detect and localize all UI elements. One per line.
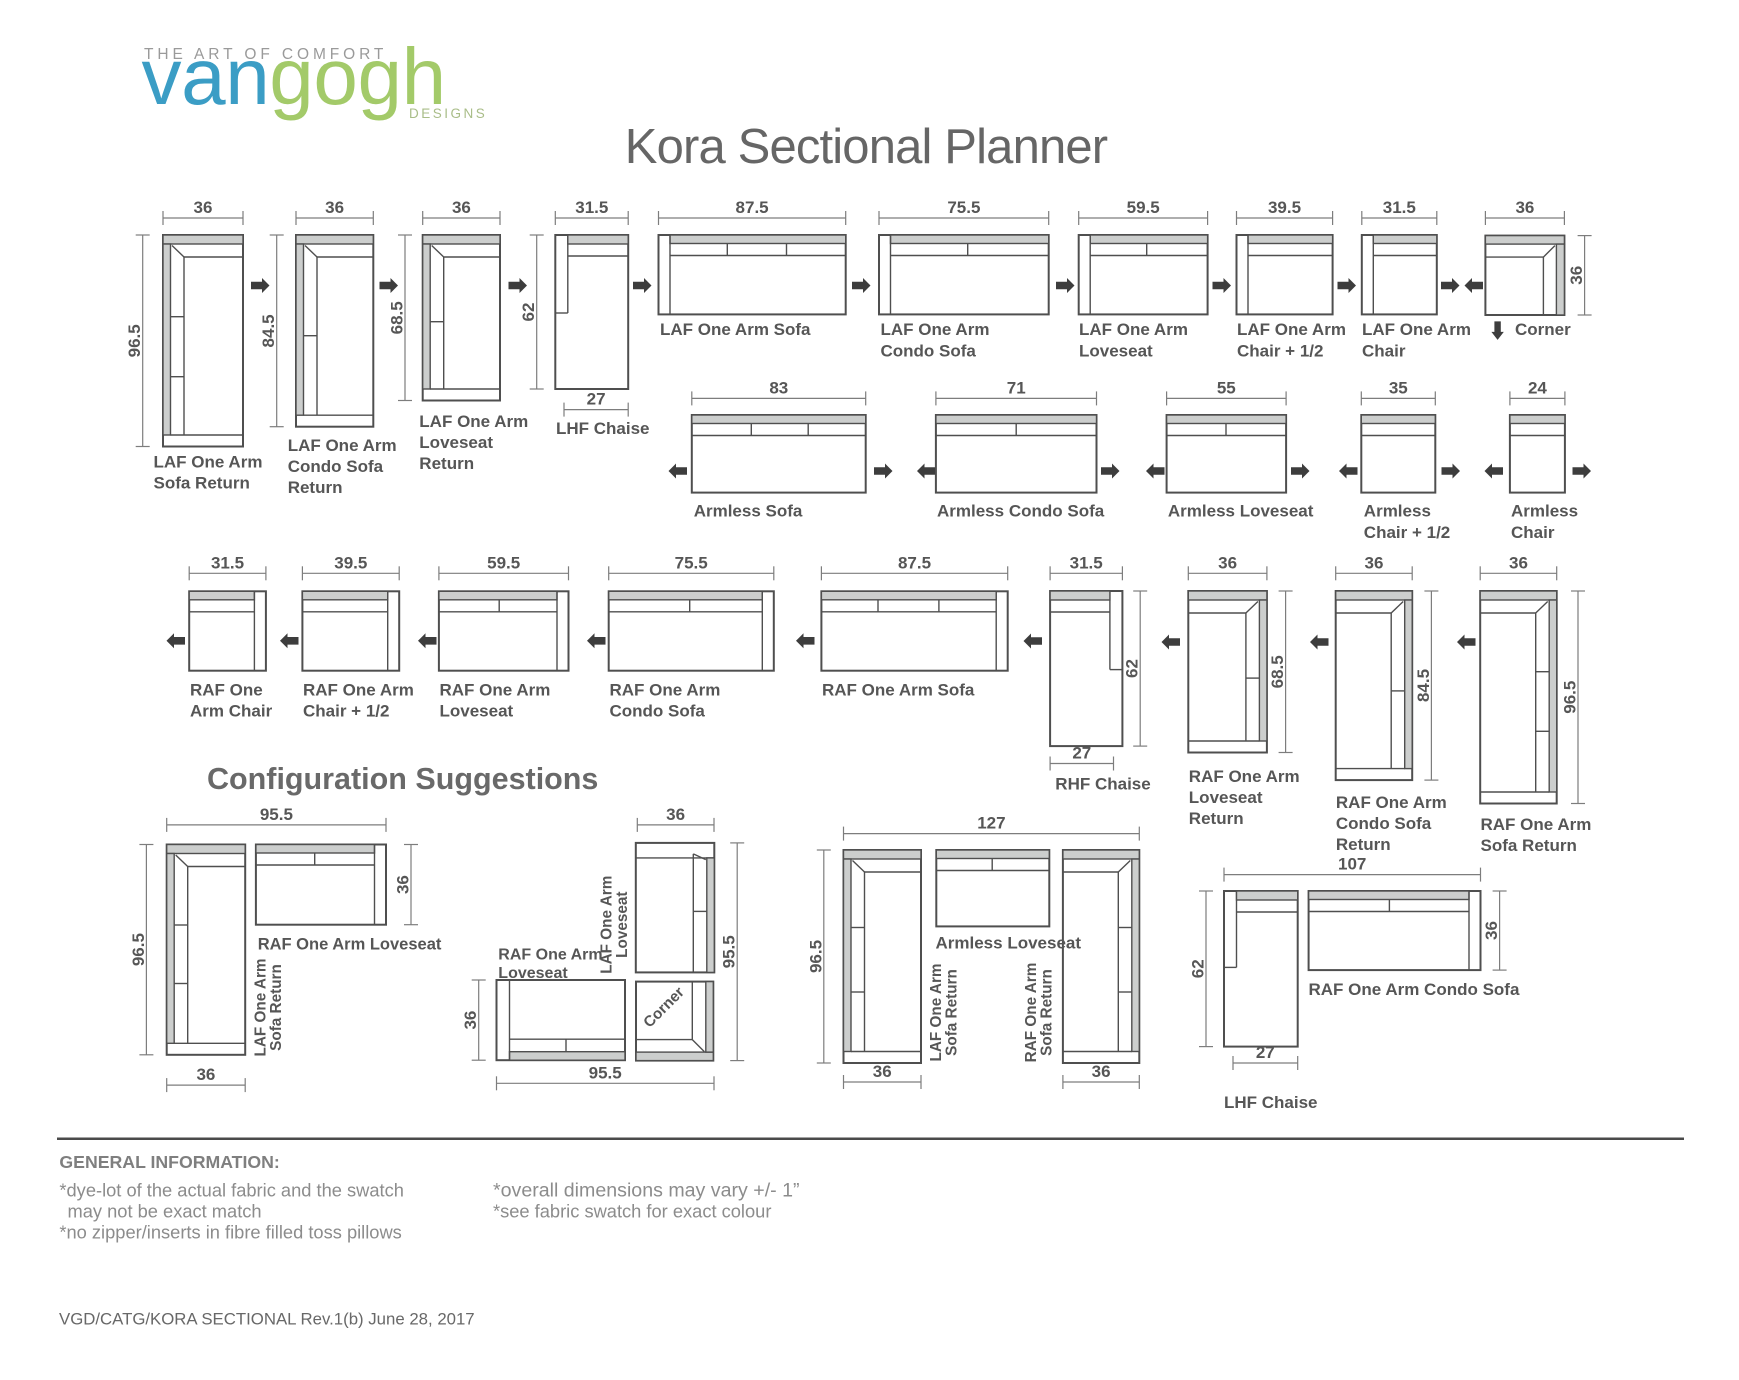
svg-text:Condo Sofa: Condo Sofa [288, 457, 384, 476]
svg-text:83: 83 [769, 378, 788, 397]
svg-text:RAF One Arm: RAF One Arm [1189, 767, 1300, 786]
svg-text:Loveseat: Loveseat [419, 433, 493, 452]
svg-text:36: 36 [1509, 553, 1528, 572]
svg-text:95.5: 95.5 [260, 805, 293, 824]
svg-text:36: 36 [1365, 553, 1384, 572]
svg-text:27: 27 [1072, 744, 1091, 763]
svg-text:Armless: Armless [1364, 502, 1431, 521]
svg-text:62: 62 [519, 303, 538, 322]
svg-text:Armless Condo Sofa: Armless Condo Sofa [937, 502, 1105, 521]
svg-text:Sofa Return: Sofa Return [944, 969, 961, 1056]
svg-text:62: 62 [1189, 959, 1208, 978]
svg-text:RAF One Arm: RAF One Arm [1023, 963, 1040, 1063]
svg-text:LAF One Arm: LAF One Arm [1079, 320, 1188, 339]
svg-text:Loveseat: Loveseat [440, 701, 514, 720]
svg-text:68.5: 68.5 [388, 301, 407, 334]
svg-text:27: 27 [1256, 1043, 1275, 1062]
svg-text:RHF Chaise: RHF Chaise [1055, 775, 1150, 794]
svg-text:35: 35 [1389, 378, 1408, 397]
svg-text:84.5: 84.5 [259, 314, 278, 347]
svg-text:96.5: 96.5 [806, 940, 825, 973]
svg-text:may not be exact match: may not be exact match [68, 1201, 262, 1222]
svg-text:DESIGNS: DESIGNS [409, 106, 487, 121]
svg-text:24: 24 [1528, 378, 1547, 397]
svg-text:LHF Chaise: LHF Chaise [1224, 1093, 1318, 1112]
svg-text:36: 36 [394, 875, 413, 894]
svg-text:36: 36 [461, 1011, 480, 1030]
svg-text:55: 55 [1217, 378, 1236, 397]
svg-text:31.5: 31.5 [211, 553, 244, 572]
svg-text:Condo Sofa: Condo Sofa [1336, 814, 1432, 833]
svg-text:*see fabric swatch for exact c: *see fabric swatch for exact colour [493, 1201, 771, 1222]
svg-text:Chair: Chair [1362, 342, 1406, 361]
svg-text:Arm Chair: Arm Chair [190, 701, 273, 720]
svg-text:Armless: Armless [1511, 502, 1578, 521]
svg-text:31.5: 31.5 [575, 198, 608, 217]
svg-text:GENERAL INFORMATION:: GENERAL INFORMATION: [59, 1152, 279, 1172]
svg-text:Return: Return [288, 478, 343, 497]
svg-text:LAF One Arm: LAF One Arm [288, 436, 397, 455]
svg-text:LAF One Arm: LAF One Arm [1362, 320, 1471, 339]
svg-text:96.5: 96.5 [1561, 681, 1580, 714]
svg-text:36: 36 [1092, 1062, 1111, 1081]
svg-text:Kora Sectional Planner: Kora Sectional Planner [625, 120, 1108, 174]
svg-text:Armless Sofa: Armless Sofa [694, 502, 803, 521]
svg-text:95.5: 95.5 [720, 935, 739, 968]
svg-text:31.5: 31.5 [1070, 553, 1103, 572]
svg-text:36: 36 [1567, 266, 1586, 285]
svg-text:LHF Chaise: LHF Chaise [556, 419, 650, 438]
svg-text:Sofa Return: Sofa Return [1039, 969, 1056, 1056]
svg-text:RAF One Arm: RAF One Arm [303, 680, 414, 699]
svg-text:36: 36 [666, 805, 685, 824]
svg-text:RAF One: RAF One [190, 680, 263, 699]
svg-text:*overall dimensions may vary +: *overall dimensions may vary +/- 1” [493, 1180, 800, 1202]
svg-text:RAF One Arm Sofa: RAF One Arm Sofa [822, 680, 975, 699]
svg-text:Return: Return [1336, 835, 1391, 854]
svg-text:39.5: 39.5 [1268, 198, 1301, 217]
svg-text:36: 36 [452, 198, 471, 217]
svg-text:Return: Return [419, 454, 474, 473]
svg-text:36: 36 [196, 1065, 215, 1084]
svg-text:Armless Loveseat: Armless Loveseat [936, 933, 1082, 952]
svg-text:Chair + 1/2: Chair + 1/2 [1364, 523, 1450, 542]
svg-text:RAF One Arm: RAF One Arm [498, 947, 602, 964]
svg-text:59.5: 59.5 [1127, 198, 1160, 217]
svg-text:RAF One Arm: RAF One Arm [1481, 815, 1592, 834]
svg-text:LAF One Arm: LAF One Arm [599, 876, 616, 974]
svg-text:127: 127 [977, 814, 1005, 833]
svg-text:107: 107 [1338, 855, 1366, 874]
svg-text:36: 36 [1515, 198, 1534, 217]
svg-text:Chair + 1/2: Chair + 1/2 [303, 701, 389, 720]
svg-text:LAF One Arm: LAF One Arm [154, 453, 263, 472]
svg-text:LAF One Arm: LAF One Arm [928, 963, 945, 1061]
svg-text:Corner: Corner [1515, 320, 1571, 339]
svg-text:LAF One Arm: LAF One Arm [881, 320, 990, 339]
svg-text:36: 36 [873, 1062, 892, 1081]
svg-text:RAF One Arm Condo Sofa: RAF One Arm Condo Sofa [1309, 980, 1520, 999]
svg-text:Condo Sofa: Condo Sofa [881, 342, 977, 361]
svg-text:LAF One Arm: LAF One Arm [1237, 320, 1346, 339]
svg-text:*no zipper/inserts in fibre fi: *no zipper/inserts in fibre filled toss … [59, 1222, 401, 1243]
svg-text:LAF One Arm: LAF One Arm [253, 958, 270, 1056]
svg-text:36: 36 [1482, 921, 1501, 940]
svg-text:Loveseat: Loveseat [1079, 342, 1153, 361]
svg-text:Sofa Return: Sofa Return [154, 474, 250, 493]
svg-text:RAF One Arm: RAF One Arm [610, 680, 721, 699]
svg-text:Sofa Return: Sofa Return [268, 964, 285, 1051]
svg-text:Loveseat: Loveseat [498, 965, 568, 982]
svg-text:Chair + 1/2: Chair + 1/2 [1237, 342, 1323, 361]
svg-text:Sofa Return: Sofa Return [1481, 836, 1577, 855]
svg-text:84.5: 84.5 [1414, 669, 1433, 702]
svg-text:Return: Return [1189, 809, 1244, 828]
svg-text:27: 27 [587, 390, 606, 409]
svg-text:Chair: Chair [1511, 523, 1555, 542]
svg-text:36: 36 [194, 198, 213, 217]
svg-text:68.5: 68.5 [1268, 655, 1287, 688]
svg-text:RAF One Arm: RAF One Arm [440, 680, 551, 699]
svg-text:LAF One Arm: LAF One Arm [419, 412, 528, 431]
svg-text:31.5: 31.5 [1383, 198, 1416, 217]
svg-text:39.5: 39.5 [334, 553, 367, 572]
svg-text:Loveseat: Loveseat [614, 892, 631, 958]
svg-text:96.5: 96.5 [129, 933, 148, 966]
svg-text:Loveseat: Loveseat [1189, 788, 1263, 807]
svg-text:87.5: 87.5 [898, 553, 931, 572]
svg-text:71: 71 [1007, 378, 1026, 397]
svg-text:Condo Sofa: Condo Sofa [610, 701, 706, 720]
svg-text:vangogh: vangogh [142, 32, 446, 121]
svg-text:Armless Loveseat: Armless Loveseat [1168, 502, 1314, 521]
svg-text:LAF One Arm Sofa: LAF One Arm Sofa [660, 320, 811, 339]
svg-text:Configuration Suggestions: Configuration Suggestions [207, 762, 598, 796]
svg-text:RAF One Arm Loveseat: RAF One Arm Loveseat [258, 936, 442, 954]
svg-text:62: 62 [1123, 659, 1142, 678]
svg-text:VGD/CATG/KORA SECTIONAL Rev.1(: VGD/CATG/KORA SECTIONAL Rev.1(b) June 28… [59, 1310, 475, 1329]
svg-text:75.5: 75.5 [675, 553, 708, 572]
svg-text:59.5: 59.5 [487, 553, 520, 572]
svg-text:*dye-lot of the actual fabric: *dye-lot of the actual fabric and the sw… [59, 1180, 404, 1201]
svg-text:36: 36 [1218, 553, 1237, 572]
svg-text:87.5: 87.5 [736, 198, 769, 217]
svg-text:95.5: 95.5 [589, 1063, 622, 1082]
svg-text:RAF One Arm: RAF One Arm [1336, 793, 1447, 812]
svg-text:96.5: 96.5 [125, 324, 144, 357]
svg-text:75.5: 75.5 [947, 198, 980, 217]
svg-text:36: 36 [325, 198, 344, 217]
